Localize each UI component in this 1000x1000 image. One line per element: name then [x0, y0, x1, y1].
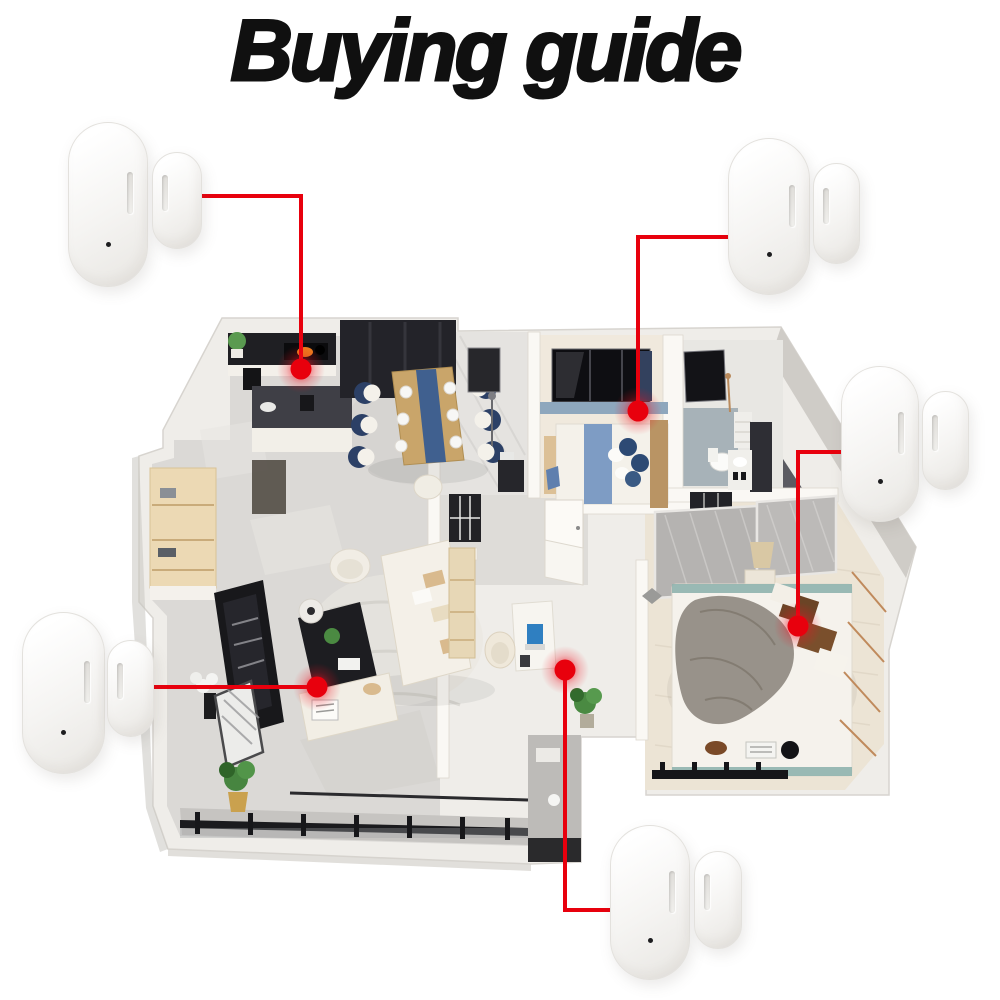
living-room-marker-dot [307, 677, 328, 698]
kitchen-stove-marker-dot [291, 359, 312, 380]
master-bedroom-marker-line [798, 452, 841, 626]
bedroom-window-marker-dot [628, 401, 649, 422]
master-bedroom-marker-dot [788, 616, 809, 637]
bedroom-window-marker-line [638, 237, 728, 411]
study-desk-marker-line [565, 670, 612, 910]
connector-overlay [0, 0, 1000, 1000]
study-desk-marker-dot [555, 660, 576, 681]
kitchen-stove-marker-line [200, 196, 301, 369]
infographic-canvas: Buying guide [0, 0, 1000, 1000]
